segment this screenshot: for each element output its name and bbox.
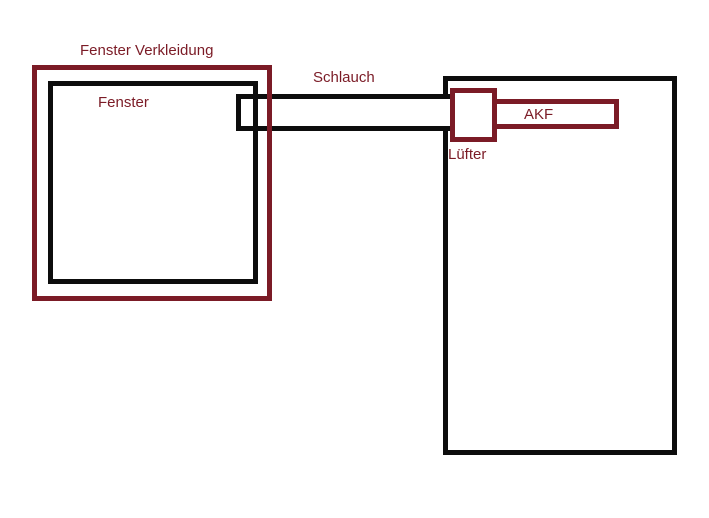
diagram-canvas: Fenster Verkleidung Fenster Schlauch Lüf…: [0, 0, 709, 518]
akf-filter-shape: [492, 99, 619, 129]
luefter-fan-shape: [450, 88, 497, 142]
fenster-verkleidung-label: Fenster Verkleidung: [80, 43, 213, 60]
schlauch-label: Schlauch: [313, 70, 375, 87]
fenster-label: Fenster: [98, 95, 149, 112]
akf-label: AKF: [524, 107, 553, 124]
luefter-label: Lüfter: [448, 147, 486, 164]
fenster-shape: [48, 81, 258, 284]
